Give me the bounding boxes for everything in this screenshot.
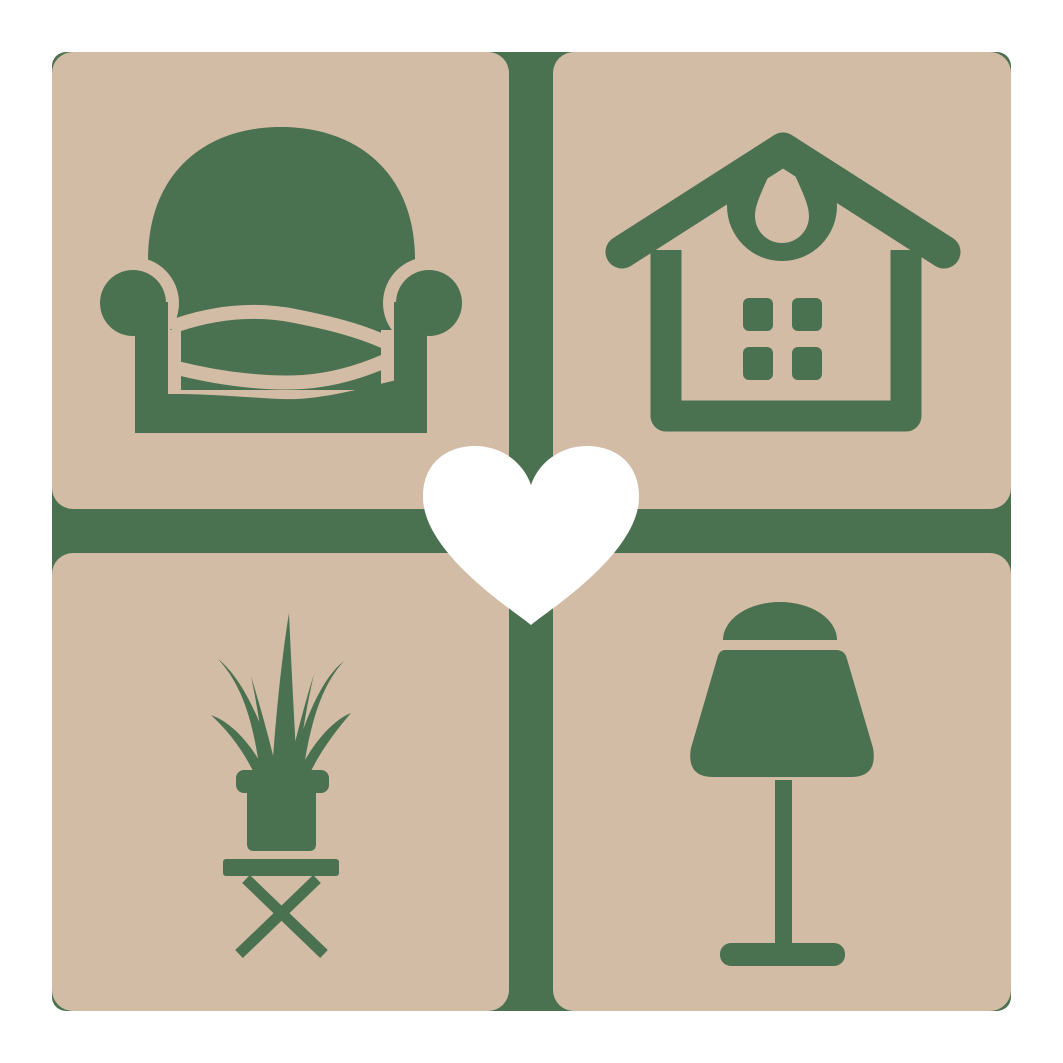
logo-canvas xyxy=(0,0,1063,1063)
tile-top-right xyxy=(553,52,1011,509)
logo-graphic xyxy=(0,0,1063,1063)
